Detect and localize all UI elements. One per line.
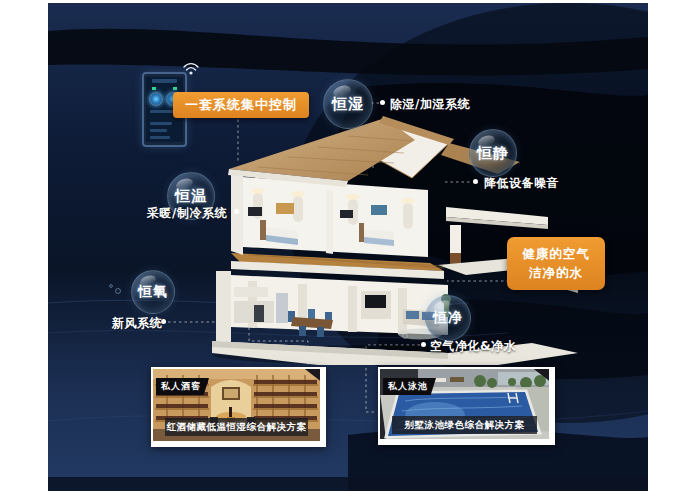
controller-menu-row-1 [150,122,172,125]
annotation-heng-shi: 除湿/加湿系统 [390,96,470,113]
bullet-heng-jing-clean [421,342,426,347]
central-control-label: 一套系统集中控制 [173,92,309,118]
clean-water-line: 洁净的水 [517,263,595,282]
bullet-heng-shi [380,100,385,105]
bubble-heng-yang: 恒氧 [131,270,175,314]
pool-card-caption: 别墅泳池绿色综合解决方案 [392,416,537,434]
healthy-air-line: 健康的空气 [517,244,595,263]
annotation-heng-jing-clean: 空气净化&净水 [430,338,516,355]
controller-menu-row-3 [150,136,170,139]
bullet-heng-wen [234,209,239,214]
house-upper-floor [231,173,428,257]
infographic-canvas: 一套系统集中控制 恒湿 恒静 恒温 恒氧 恒净 除湿/加湿系统 降低设备噪音 采… [0,0,700,497]
controller-titlebar [152,79,177,83]
house-illustration [198,95,578,365]
wine-card-tag: 私人酒窖 [156,378,209,395]
controller-indicator-left [152,87,156,90]
pool-card[interactable]: 私人泳池 别墅泳池绿色综合解决方案 [378,367,555,445]
bubble-heng-jing-clean: 恒净 [425,295,471,341]
controller-indicator-right [173,87,177,90]
wine-cellar-card[interactable]: 私人酒窖 红酒储藏低温恒湿综合解决方案 [151,367,326,447]
swimming-pool-photo: 私人泳池 别墅泳池绿色综合解决方案 [380,369,549,439]
annotation-heng-yang: 新风系统 [112,315,162,332]
wine-cellar-photo: 私人酒窖 红酒储藏低温恒湿综合解决方案 [153,369,320,441]
house-lower-floor [216,271,451,347]
healthy-air-water-box: 健康的空气 洁净的水 [507,237,605,290]
wine-card-caption: 红酒储藏低温恒湿综合解决方案 [165,418,309,436]
bullet-heng-jing-quiet [473,179,478,184]
pool-card-tag: 私人泳池 [383,378,436,395]
bubble-heng-jing-quiet: 恒静 [469,129,517,177]
annotation-heng-jing-quiet: 降低设备噪音 [484,175,559,192]
annotation-heng-wen: 采暖/制冷系统 [147,205,227,222]
house-middle-slab [231,253,444,279]
controller-menu-row-2 [150,129,167,132]
scene: 一套系统集中控制 恒湿 恒静 恒温 恒氧 恒净 除湿/加湿系统 降低设备噪音 采… [48,3,648,491]
bubble-heng-shi: 恒湿 [323,79,373,129]
controller-dial-left[interactable] [149,92,163,106]
